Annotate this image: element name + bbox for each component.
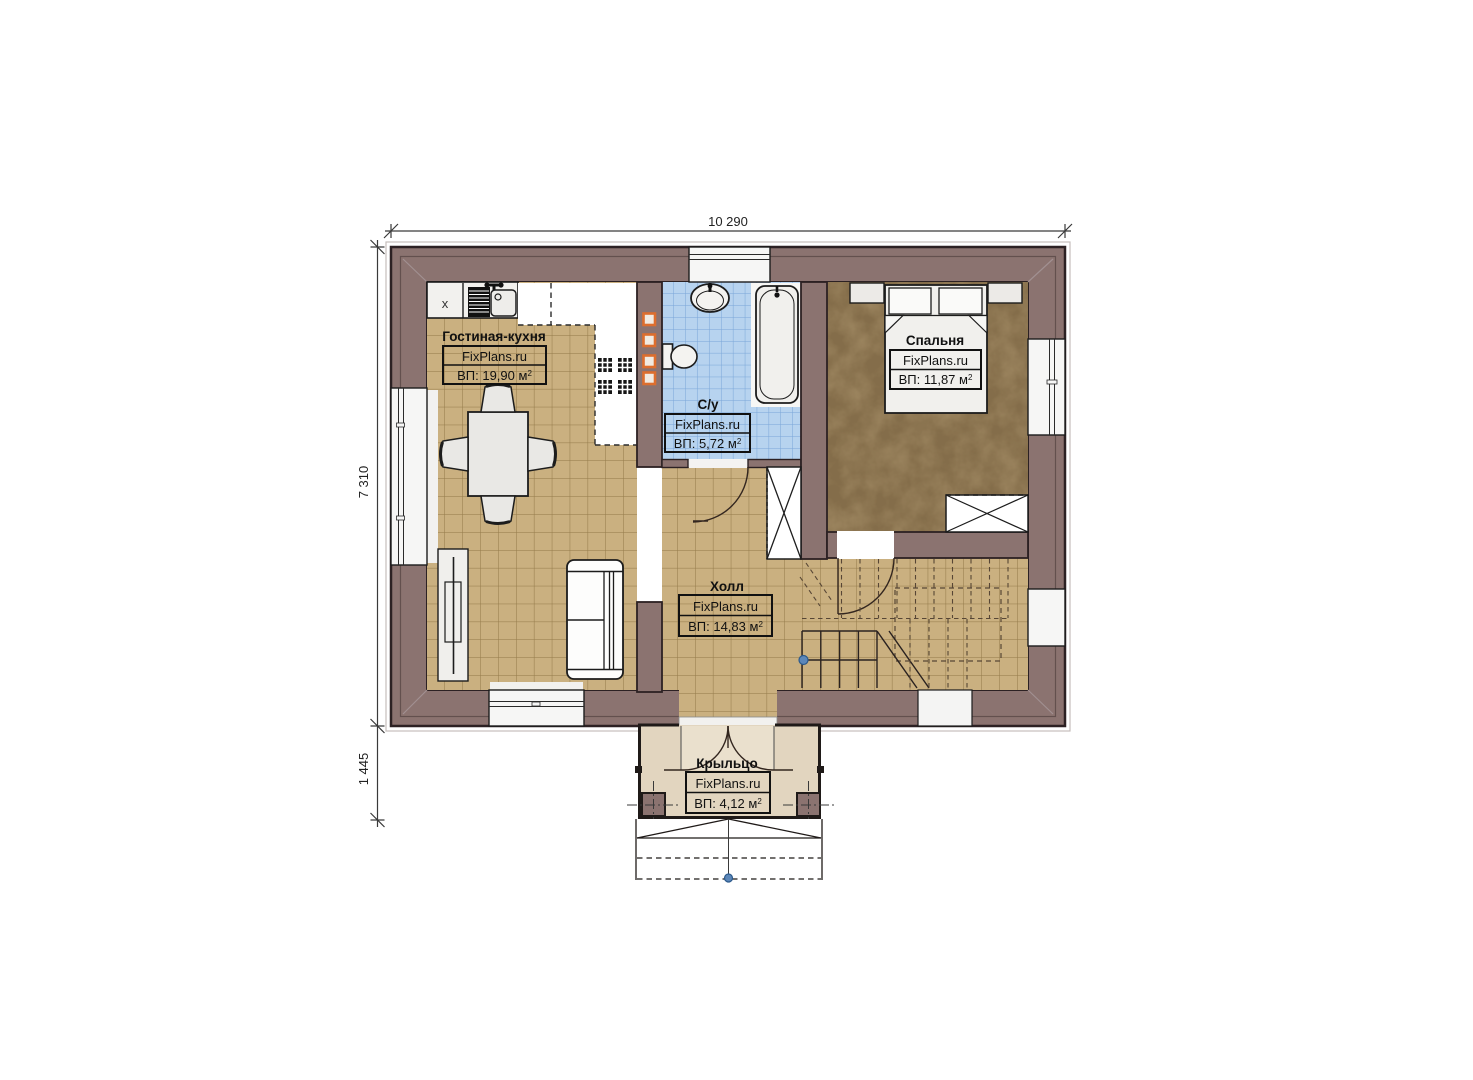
svg-text:1 445: 1 445 [356,753,371,786]
svg-text:FixPlans.ru: FixPlans.ru [695,776,760,791]
svg-text:FixPlans.ru: FixPlans.ru [675,417,740,432]
svg-text:ВП: 14,83 м2: ВП: 14,83 м2 [688,619,763,634]
svg-text:ВП: 19,90 м2: ВП: 19,90 м2 [457,368,532,383]
svg-text:ВП: 11,87 м2: ВП: 11,87 м2 [899,372,973,387]
svg-text:ВП: 5,72 м2: ВП: 5,72 м2 [674,436,742,451]
svg-text:Холл: Холл [710,579,744,594]
svg-text:FixPlans.ru: FixPlans.ru [693,599,758,614]
svg-text:Спальня: Спальня [906,333,964,348]
svg-text:С/у: С/у [697,397,719,412]
svg-text:FixPlans.ru: FixPlans.ru [462,349,527,364]
svg-text:Крыльцо: Крыльцо [696,756,757,771]
svg-text:ВП: 4,12 м2: ВП: 4,12 м2 [694,796,762,811]
svg-text:10 290: 10 290 [708,214,748,229]
svg-text:7 310: 7 310 [356,466,371,499]
svg-text:FixPlans.ru: FixPlans.ru [903,353,968,368]
svg-text:x: x [442,296,449,311]
svg-text:Гостиная-кухня: Гостиная-кухня [442,329,545,344]
